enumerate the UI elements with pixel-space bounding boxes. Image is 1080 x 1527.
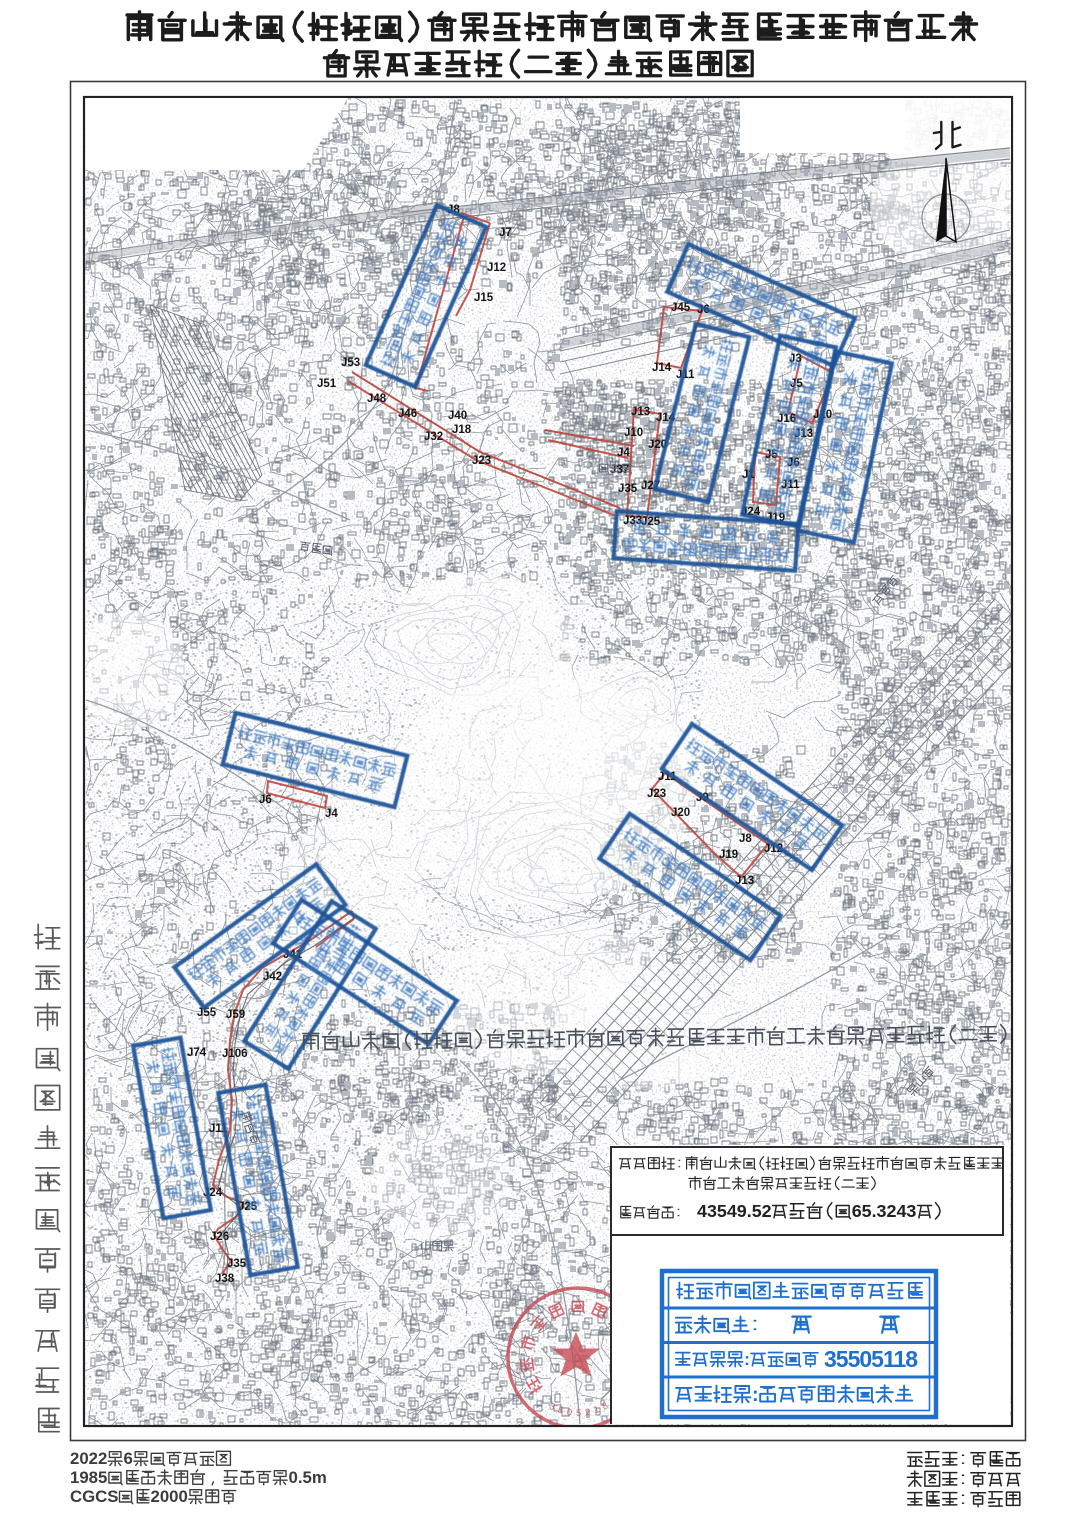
- svg-text:J12: J12: [487, 262, 506, 274]
- svg-text:J46: J46: [398, 408, 417, 420]
- svg-text:0.5m: 0.5m: [289, 1468, 327, 1487]
- svg-text:J10: J10: [624, 427, 643, 439]
- svg-text:6: 6: [124, 1449, 133, 1468]
- svg-text:J53: J53: [341, 357, 360, 369]
- svg-text:J35: J35: [227, 1258, 247, 1270]
- svg-text::: :: [752, 1384, 759, 1406]
- svg-text:J38: J38: [215, 1273, 235, 1285]
- svg-text:J8: J8: [739, 833, 752, 845]
- svg-text:J55: J55: [197, 1007, 217, 1019]
- svg-text:J23: J23: [472, 455, 491, 467]
- svg-text:2022: 2022: [70, 1449, 107, 1468]
- svg-text:1985: 1985: [70, 1468, 107, 1487]
- svg-text:J45: J45: [671, 302, 691, 314]
- svg-text:J14: J14: [652, 362, 672, 374]
- svg-text:J48: J48: [367, 393, 387, 405]
- svg-text:J13: J13: [631, 406, 650, 418]
- svg-text:J20: J20: [671, 807, 690, 819]
- svg-text:J23: J23: [647, 788, 666, 800]
- svg-text:J18: J18: [452, 424, 472, 436]
- svg-text:J35: J35: [618, 483, 638, 495]
- svg-text:35505118: 35505118: [824, 1346, 918, 1372]
- svg-text:J4: J4: [617, 447, 630, 459]
- svg-text:J74: J74: [187, 1047, 207, 1059]
- svg-text:J26: J26: [210, 1231, 229, 1243]
- svg-text:CGCS: CGCS: [70, 1487, 118, 1506]
- svg-text:J7: J7: [499, 227, 512, 239]
- svg-text:5: 5: [576, 1408, 581, 1419]
- svg-text:65.3243: 65.3243: [852, 1201, 917, 1221]
- svg-text:J51: J51: [317, 378, 337, 390]
- svg-text:J5: J5: [790, 378, 803, 390]
- svg-text:J32: J32: [424, 431, 443, 443]
- svg-text:J11: J11: [781, 479, 800, 491]
- svg-text::: :: [744, 1349, 750, 1369]
- svg-text:J4: J4: [325, 808, 338, 820]
- svg-text:J19: J19: [719, 849, 738, 861]
- svg-text:2000: 2000: [151, 1487, 188, 1506]
- svg-text:J15: J15: [474, 292, 494, 304]
- svg-text:J40: J40: [448, 410, 467, 422]
- svg-text:J6: J6: [259, 794, 272, 806]
- svg-text:43549.52: 43549.52: [697, 1201, 772, 1221]
